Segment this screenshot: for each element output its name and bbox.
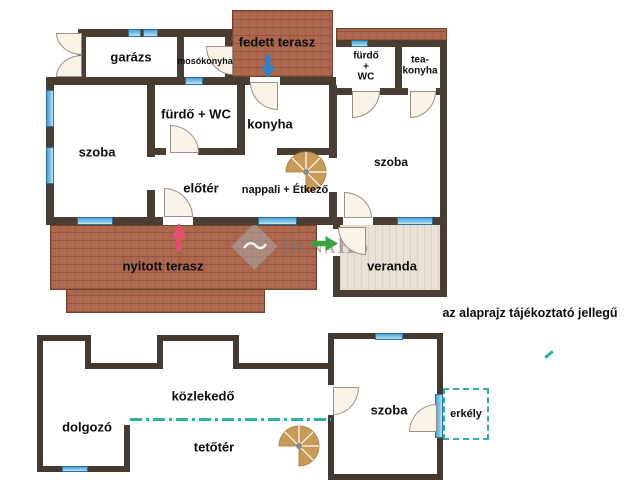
wall xyxy=(157,335,239,341)
door-arc xyxy=(250,82,278,110)
wall xyxy=(328,415,334,480)
wall xyxy=(437,333,443,395)
window xyxy=(77,217,113,225)
wall xyxy=(147,148,166,155)
door-arc xyxy=(410,91,436,118)
room-label-garage: garázs xyxy=(110,50,151,65)
window xyxy=(397,217,433,225)
wall xyxy=(147,190,155,218)
wall xyxy=(329,85,337,158)
disclaimer-text: az alaprajz tájékoztató jellegű xyxy=(442,306,617,320)
room-label-study: dolgozó xyxy=(62,420,112,435)
wall xyxy=(380,88,408,95)
room-label-room-left: szoba xyxy=(79,145,116,160)
door-arc xyxy=(344,192,372,218)
wall xyxy=(336,217,343,225)
room-label-bath-wc: fürdő + WC xyxy=(161,107,231,122)
room-label-laundry: mosókonyha xyxy=(177,56,233,66)
wall xyxy=(46,77,250,85)
wall xyxy=(440,40,447,297)
floor-plan: DunaHo xyxy=(0,0,640,480)
room-label-bath-small: fürdő + WC xyxy=(353,51,379,83)
wall xyxy=(85,363,163,369)
window xyxy=(46,147,54,184)
wall xyxy=(336,88,352,95)
room-label-tea-kitchen: tea- konyha xyxy=(402,56,437,77)
room-label-attic: tetőtér xyxy=(194,440,234,455)
wall xyxy=(280,77,336,85)
window xyxy=(185,77,203,85)
wall xyxy=(147,85,155,157)
door-arc xyxy=(409,404,437,432)
door-arc xyxy=(333,387,359,415)
window xyxy=(351,40,368,47)
window xyxy=(128,29,141,37)
wall xyxy=(124,425,130,472)
room-label-veranda: veranda xyxy=(367,259,417,274)
window xyxy=(143,29,158,37)
window xyxy=(46,90,54,127)
wall xyxy=(233,363,334,369)
room-label-hall: előtér xyxy=(183,181,218,196)
room-label-balcony: erkély xyxy=(450,408,482,420)
attic-height-line xyxy=(130,418,331,421)
wall xyxy=(436,88,447,95)
garage-door-arc xyxy=(56,55,82,77)
wall xyxy=(328,333,334,385)
room-label-corridor: közlekedő xyxy=(172,389,235,404)
room-label-covered-terrace: fedett terasz xyxy=(239,35,316,50)
window xyxy=(375,333,403,340)
wall xyxy=(37,335,43,472)
room-label-room-lower: szoba xyxy=(371,403,408,418)
wall xyxy=(237,85,245,155)
room-label-kitchen: konyha xyxy=(247,117,293,132)
window xyxy=(62,466,88,472)
room-label-room-right: szoba xyxy=(374,155,408,169)
teal-tick-mark xyxy=(544,350,554,359)
door-arc xyxy=(170,125,199,153)
wall xyxy=(333,290,447,297)
spiral-staircase-icon xyxy=(272,424,322,466)
wall xyxy=(37,335,91,341)
open-terrace-floor-lower xyxy=(66,289,265,313)
window xyxy=(258,217,297,225)
room-label-living: nappali + Étkező xyxy=(242,184,329,196)
watermark-wave-icon xyxy=(243,240,267,252)
wall xyxy=(328,474,443,480)
door-arc xyxy=(352,91,380,118)
garage-door-arc xyxy=(56,33,82,55)
room-label-open-terrace: nyitott terasz xyxy=(123,259,204,274)
